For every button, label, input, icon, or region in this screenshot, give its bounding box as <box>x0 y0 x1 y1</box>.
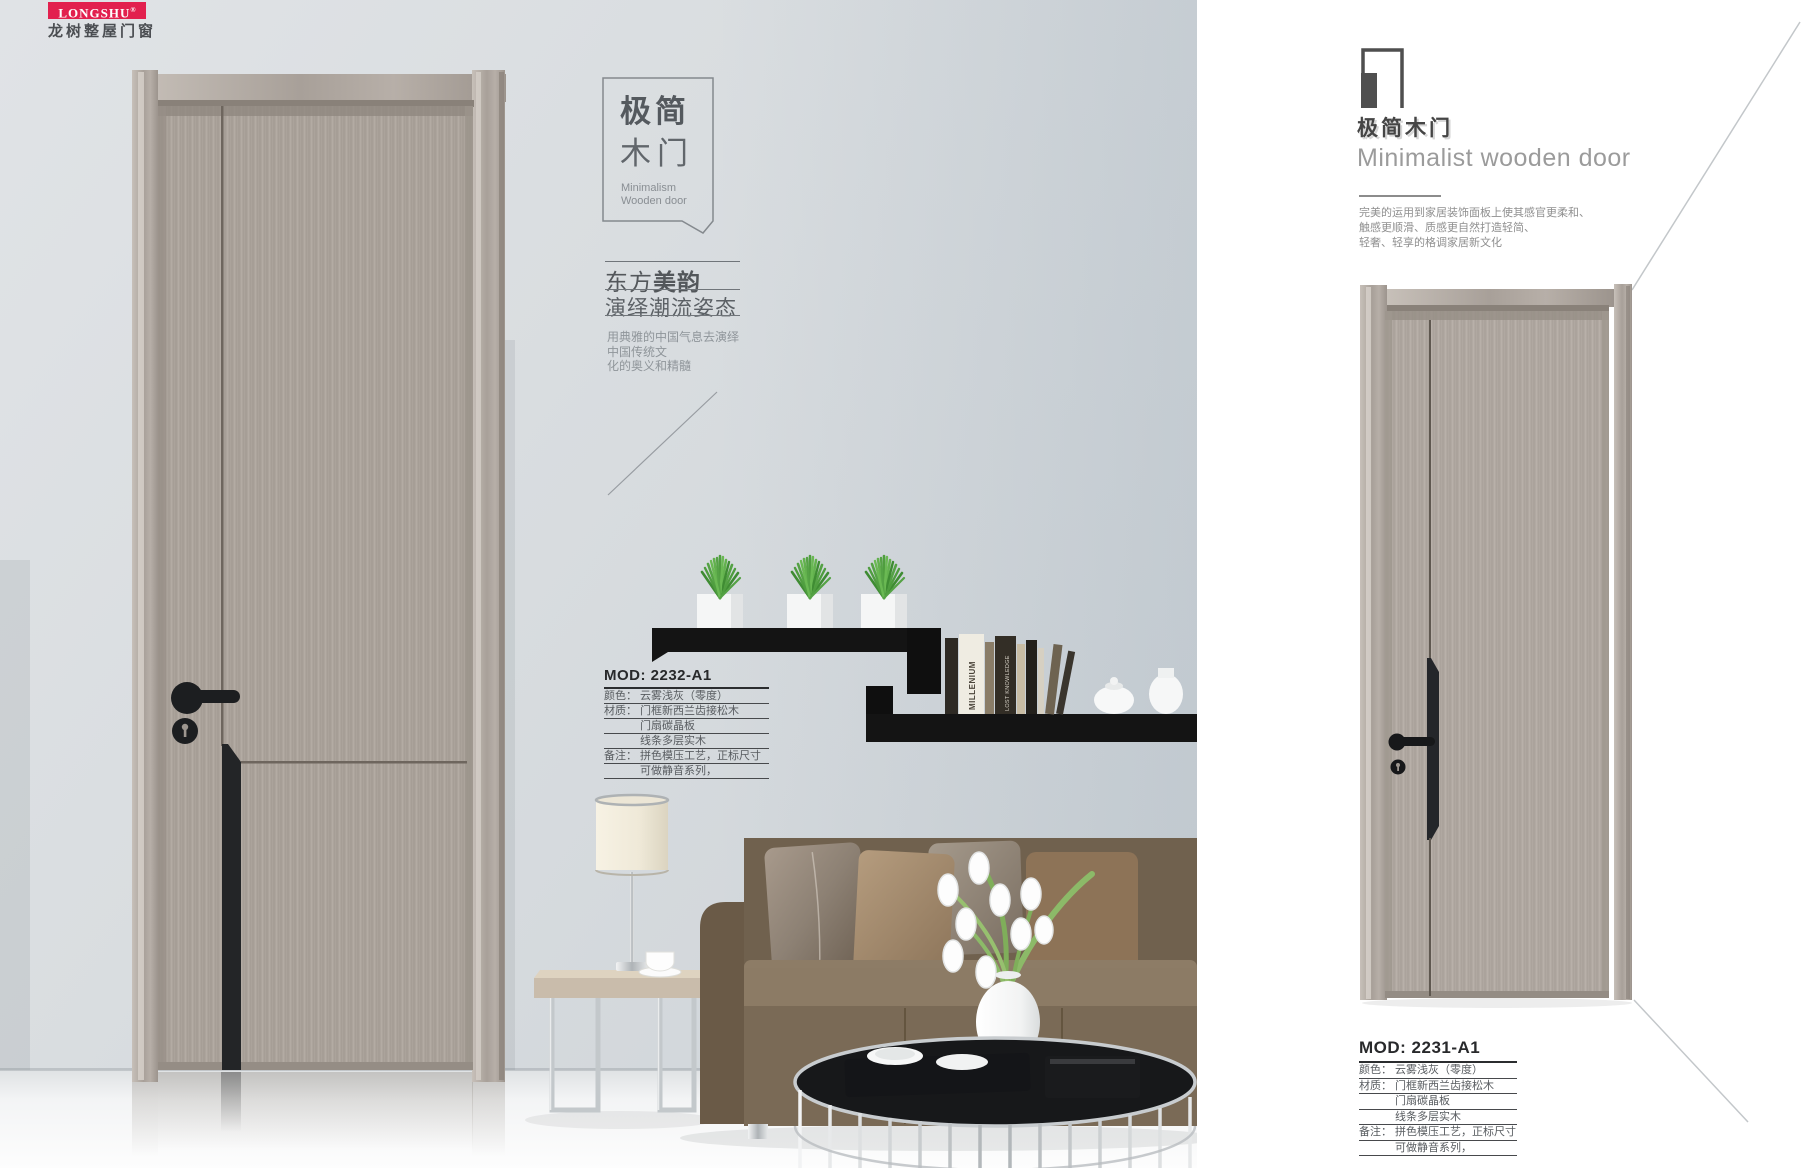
label-box-title-line1: 极简 <box>620 86 690 131</box>
door-photo-left <box>132 70 515 1156</box>
tagline-rule-mid <box>605 289 740 290</box>
spec-row: 材质： 门框新西兰齿接松木 <box>1359 1079 1517 1095</box>
registered-mark: ® <box>130 6 135 14</box>
spec-row: 材质： 门框新西兰齿接松木 <box>604 704 769 719</box>
label-box-title-line2: 木门 <box>620 128 694 173</box>
spec-row: 可做静音系列， <box>1359 1141 1517 1157</box>
spec-row: 颜色： 云雾浅灰（零度） <box>1359 1063 1517 1079</box>
label-box-en-line2: Wooden door <box>621 195 687 208</box>
tagline-line2: 演绎潮流姿态 <box>605 292 737 322</box>
spec-row: 门扇碳晶板 <box>1359 1094 1517 1110</box>
spec-row: 线条多层实木 <box>1359 1110 1517 1126</box>
spec-table-right: MOD: 2231-A1 颜色： 云雾浅灰（零度） 材质： 门框新西兰齿接松木 … <box>1359 1038 1517 1156</box>
book-spine-title: MILLENIUM <box>968 661 977 710</box>
brand-logo-text: LONGSHU <box>58 5 130 20</box>
door-leaf-right <box>1385 311 1609 998</box>
spec-row: 门扇碳晶板 <box>604 719 769 734</box>
brand-logo-subtitle: 龙树整屋门窗 <box>48 20 156 41</box>
left-description-line1: 用典雅的中国气息去演绎 <box>607 330 739 345</box>
right-title-rule <box>1359 195 1441 197</box>
right-description: 完美的运用到家居装饰面板上使其感官更柔和、 触感更顺滑、质感更自然打造轻简、 轻… <box>1359 206 1590 251</box>
label-box-en-line1: Minimalism <box>621 182 687 195</box>
left-description-line2: 中国传统文 <box>607 345 739 360</box>
catalog-page: MILLENIUM LOST KNOWLEDGE <box>0 0 1808 1168</box>
right-description-line1: 完美的运用到家居装饰面板上使其感官更柔和、 <box>1359 206 1590 221</box>
label-box-english: Minimalism Wooden door <box>621 182 687 208</box>
index-number-graphic <box>1361 50 1402 108</box>
spec-row: 可做静音系列， <box>604 764 769 779</box>
spec-table-left: MOD: 2232-A1 颜色： 云雾浅灰（零度） 材质： 门框新西兰齿接松木 … <box>604 667 769 779</box>
left-description-line3: 化的奥义和精髓 <box>607 359 739 374</box>
tagline-rule-top <box>605 261 740 262</box>
door-photo-right <box>1360 284 1632 1008</box>
model-number: MOD: 2231-A1 <box>1359 1038 1517 1063</box>
door-leaf-left <box>158 106 473 1070</box>
right-title-cn: 极简木门 <box>1357 112 1453 142</box>
book-spine-title: LOST KNOWLEDGE <box>1005 655 1011 711</box>
spec-row: 颜色： 云雾浅灰（零度） <box>604 689 769 704</box>
left-description: 用典雅的中国气息去演绎 中国传统文 化的奥义和精髓 <box>607 330 739 374</box>
spec-row: 备注： 拼色模压工艺，正标尺寸 <box>604 749 769 764</box>
model-number: MOD: 2232-A1 <box>604 667 769 689</box>
right-description-line2: 触感更顺滑、质感更自然打造轻简、 <box>1359 221 1590 236</box>
right-title-en: Minimalist wooden door <box>1357 144 1631 173</box>
tagline-rule-bottom <box>605 315 740 316</box>
catalog-artwork: MILLENIUM LOST KNOWLEDGE <box>0 0 1808 1168</box>
diagonal-line-top <box>1632 22 1800 290</box>
right-description-line3: 轻奢、轻享的格调家居新文化 <box>1359 236 1590 251</box>
spec-row: 备注： 拼色模压工艺，正标尺寸 <box>1359 1125 1517 1141</box>
right-panel-art <box>1360 22 1800 1122</box>
spec-row: 线条多层实木 <box>604 734 769 749</box>
wall-left-edge <box>0 560 30 1070</box>
living-room-scene <box>525 795 1220 1168</box>
diagonal-line-bottom <box>1634 1000 1748 1122</box>
brand-logo: LONGSHU® <box>48 2 146 19</box>
